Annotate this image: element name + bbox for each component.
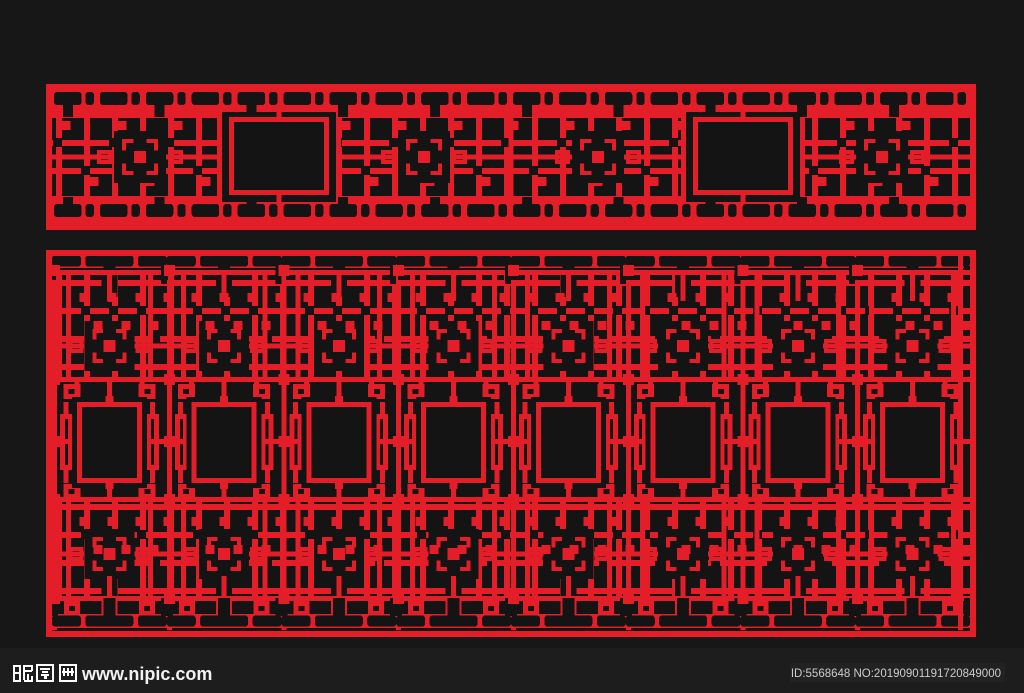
svg-text:ID:5568648 NO:2019090119172084: ID:5568648 NO:20190901191720849000 xyxy=(791,668,1001,680)
svg-text:www.nipic.com: www.nipic.com xyxy=(81,664,212,684)
